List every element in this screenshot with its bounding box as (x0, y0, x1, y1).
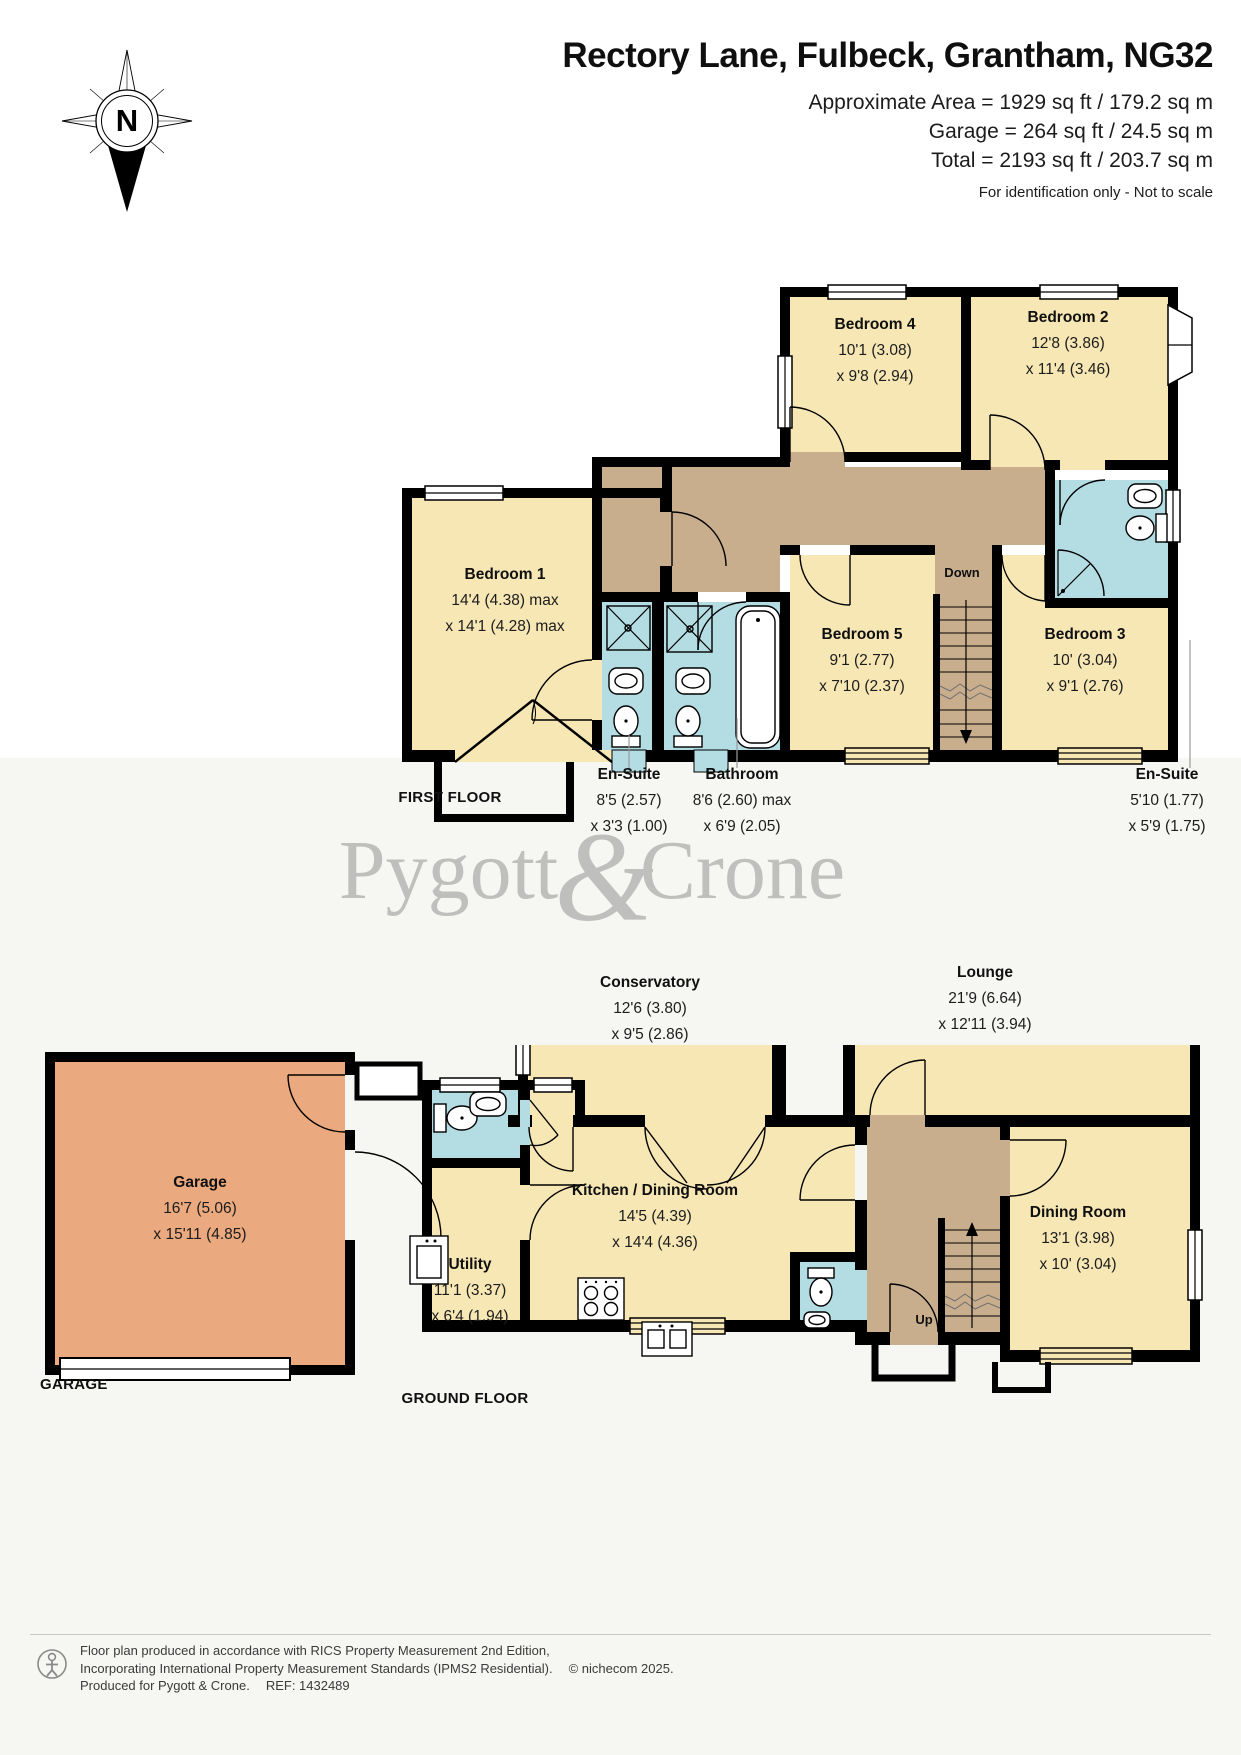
header: Rectory Lane, Fulbeck, Grantham, NG32 Ap… (562, 36, 1213, 201)
footer-copyright: © nichecom 2025. (569, 1661, 674, 1676)
room-name: Conservatory (600, 970, 700, 996)
room-dim: x 11'4 (3.46) (1026, 357, 1111, 383)
garage-block-label: GARAGE (40, 1376, 108, 1393)
room-label-ensuite-2: En-Suite 5'10 (1.77) x 5'9 (1.75) (1128, 762, 1205, 840)
footer: Floor plan produced in accordance with R… (80, 1642, 674, 1695)
room-dim: x 15'11 (4.85) (153, 1222, 246, 1248)
room-label-ensuite-1: En-Suite 8'5 (2.57) x 3'3 (1.00) (590, 762, 667, 840)
footer-line2: Incorporating International Property Mea… (80, 1661, 553, 1676)
room-label-lounge: Lounge 21'9 (6.64) x 12'11 (3.94) (938, 960, 1031, 1038)
room-dim: 12'8 (3.86) (1026, 331, 1111, 357)
room-name: Kitchen / Dining Room (572, 1178, 738, 1204)
room-dim: x 10' (3.04) (1030, 1252, 1126, 1278)
room-dim: x 14'1 (4.28) max (445, 614, 564, 640)
room-label-bedroom-3: Bedroom 3 10' (3.04) x 9'1 (2.76) (1045, 622, 1126, 700)
room-dim: x 6'4 (1.94) (431, 1304, 508, 1330)
first-floor-label: FIRST FLOOR (398, 789, 501, 806)
room-name: Bedroom 5 (819, 622, 905, 648)
room-label-kitchen-dining: Kitchen / Dining Room 14'5 (4.39) x 14'4… (572, 1178, 738, 1256)
room-label-conservatory: Conservatory 12'6 (3.80) x 9'5 (2.86) (600, 970, 700, 1048)
room-dim: x 9'1 (2.76) (1045, 674, 1126, 700)
front-porch (875, 1345, 952, 1378)
room-dim: x 14'4 (4.36) (572, 1230, 738, 1256)
room-dim: 16'7 (5.06) (153, 1196, 246, 1222)
room-dim: x 5'9 (1.75) (1128, 814, 1205, 840)
total-area: Total = 2193 sq ft / 203.7 sq m (562, 146, 1213, 175)
room-dim: 10' (3.04) (1045, 648, 1126, 674)
stairs-up-label: Up (915, 1312, 932, 1327)
room-dim: 21'9 (6.64) (938, 986, 1031, 1012)
room-name: Bedroom 1 (445, 562, 564, 588)
room-dim: x 12'11 (3.94) (938, 1012, 1031, 1038)
room-dim: 10'1 (3.08) (835, 338, 916, 364)
footer-divider (30, 1634, 1211, 1635)
room-dim: x 6'9 (2.05) (693, 814, 792, 840)
first-floor-stairs (940, 594, 992, 750)
footer-ref: REF: 1432489 (266, 1678, 350, 1693)
ground-floor-label: GROUND FLOOR (402, 1390, 529, 1407)
room-name: Utility (431, 1252, 508, 1278)
room-dim: 12'6 (3.80) (600, 996, 700, 1022)
approximate-area: Approximate Area = 1929 sq ft / 179.2 sq… (562, 88, 1213, 117)
room-dim: 14'4 (4.38) max (445, 588, 564, 614)
room-name: En-Suite (590, 762, 667, 788)
room-name: Bedroom 3 (1045, 622, 1126, 648)
room-dim: 13'1 (3.98) (1030, 1226, 1126, 1252)
room-name: Bathroom (693, 762, 792, 788)
room-name: En-Suite (1128, 762, 1205, 788)
room-name: Bedroom 4 (835, 312, 916, 338)
footer-line1: Floor plan produced in accordance with R… (80, 1642, 674, 1660)
dining-porch (995, 1362, 1048, 1390)
footer-line3: Produced for Pygott & Crone. (80, 1678, 250, 1693)
room-dim: x 3'3 (1.00) (590, 814, 667, 840)
garage-link (357, 1064, 420, 1098)
disclaimer: For identification only - Not to scale (562, 184, 1213, 201)
room-dim: 14'5 (4.39) (572, 1204, 738, 1230)
room-dim: x 9'8 (2.94) (835, 364, 916, 390)
room-dim: 11'1 (3.37) (431, 1278, 508, 1304)
room-label-bedroom-5: Bedroom 5 9'1 (2.77) x 7'10 (2.37) (819, 622, 905, 700)
room-label-utility: Utility 11'1 (3.37) x 6'4 (1.94) (431, 1252, 508, 1330)
garage-area: Garage = 264 sq ft / 24.5 sq m (562, 117, 1213, 146)
room-dim: 9'1 (2.77) (819, 648, 905, 674)
room-label-dining-room: Dining Room 13'1 (3.98) x 10' (3.04) (1030, 1200, 1126, 1278)
person-icon (36, 1646, 68, 1682)
floorplan-page: N Rectory Lane, Fulbeck, Grantham, NG32 … (0, 0, 1241, 1755)
ground-floor-stairs (945, 1218, 1000, 1332)
room-dim: 8'5 (2.57) (590, 788, 667, 814)
room-label-bedroom-2: Bedroom 2 12'8 (3.86) x 11'4 (3.46) (1026, 305, 1111, 383)
room-name: Lounge (938, 960, 1031, 986)
room-label-bathroom: Bathroom 8'6 (2.60) max x 6'9 (2.05) (693, 762, 792, 840)
room-dim: x 7'10 (2.37) (819, 674, 905, 700)
room-label-bedroom-1: Bedroom 1 14'4 (4.38) max x 14'1 (4.28) … (445, 562, 564, 640)
stairs-down-label: Down (944, 565, 979, 580)
room-name: Bedroom 2 (1026, 305, 1111, 331)
page-title: Rectory Lane, Fulbeck, Grantham, NG32 (562, 36, 1213, 76)
room-label-garage: Garage 16'7 (5.06) x 15'11 (4.85) (153, 1170, 246, 1248)
room-label-bedroom-4: Bedroom 4 10'1 (3.08) x 9'8 (2.94) (835, 312, 916, 390)
room-dim: x 9'5 (2.86) (600, 1022, 700, 1048)
room-dim: 5'10 (1.77) (1128, 788, 1205, 814)
compass-north-label: N (116, 103, 138, 139)
room-name: Dining Room (1030, 1200, 1126, 1226)
room-dim: 8'6 (2.60) max (693, 788, 792, 814)
room-name: Garage (153, 1170, 246, 1196)
